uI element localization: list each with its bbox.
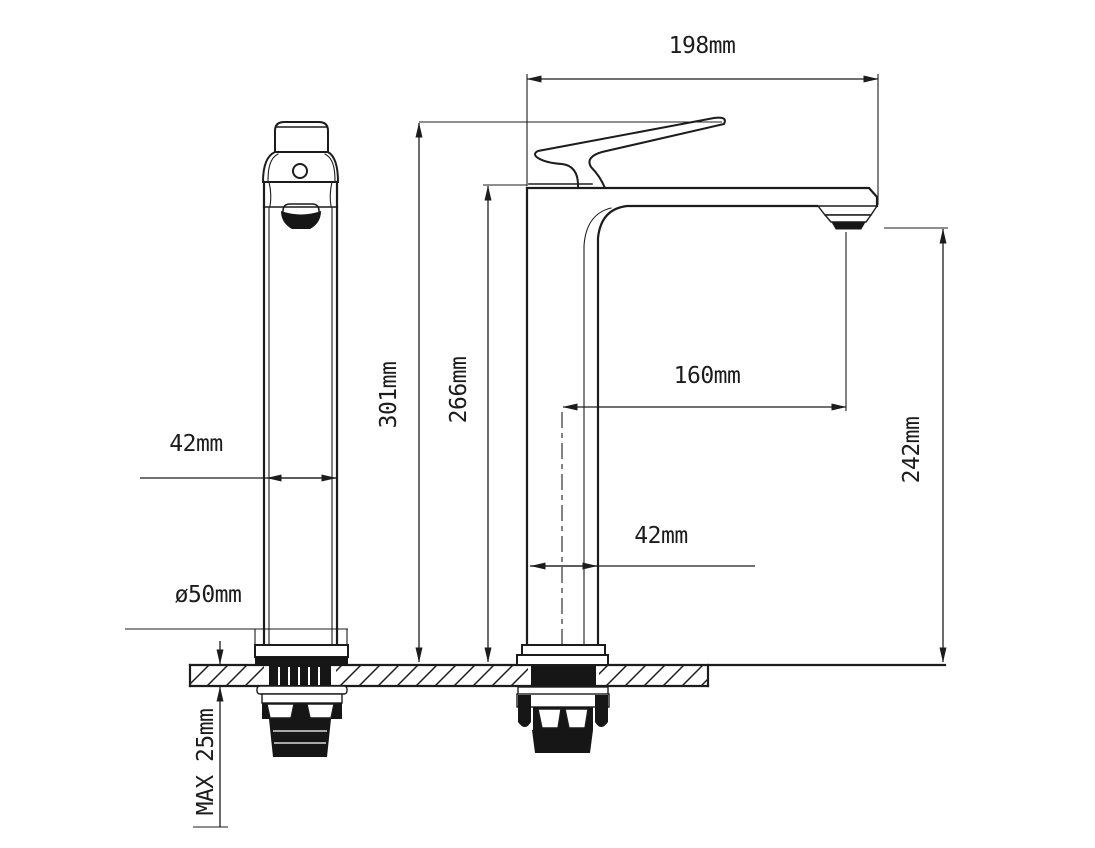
label-body-width-side: 42mm [634,523,687,549]
front-view-faucet [255,122,348,757]
threaded-stem-through-counter-side [531,666,596,687]
label-spout-reach: 160mm [674,363,741,389]
clamp-hook-left [518,695,531,727]
label-spout-width: 198mm [669,33,736,59]
threaded-stem-side [532,730,593,753]
label-max-thickness: MAX 25mm [193,709,219,816]
threaded-stem [269,719,331,757]
spout-underside-and-riser-back [598,206,817,645]
body-outer-edges [264,207,337,645]
base-gasket [255,657,348,666]
spout-top-edge [527,188,877,206]
nut-collar [262,694,342,703]
label-outlet-height: 242mm [899,417,925,484]
side-view-faucet [517,118,877,753]
label-deck-height: 266mm [446,357,472,424]
handle-screw-hole [293,164,307,178]
counter-hatch-right [599,666,707,685]
aerator [832,222,865,229]
label-body-width-front: 42mm [169,431,222,457]
spout-outlet-front [281,211,321,229]
outlet-tier-2 [825,215,871,222]
label-overall-height: 301mm [376,362,402,429]
clamp-hook-right [595,695,608,727]
neck-inner-contours [269,182,332,206]
base-flange-side [517,655,608,665]
counter-hatch-left [191,666,264,685]
technical-drawing-canvas: 198mm 301mm 266mm 160mm 242mm 42mm 42mm … [0,0,1095,848]
handle-lever [535,118,725,188]
label-base-diameter: ø50mm [175,582,242,608]
body-inner-edges [269,207,332,645]
faucet-dimension-drawing: 198mm 301mm 266mm 160mm 242mm 42mm 42mm … [0,0,1095,848]
outlet-tier-1 [818,206,877,215]
base-plinth [255,645,348,657]
counter-hatch-middle [336,666,528,685]
mounting-washer [257,686,347,694]
